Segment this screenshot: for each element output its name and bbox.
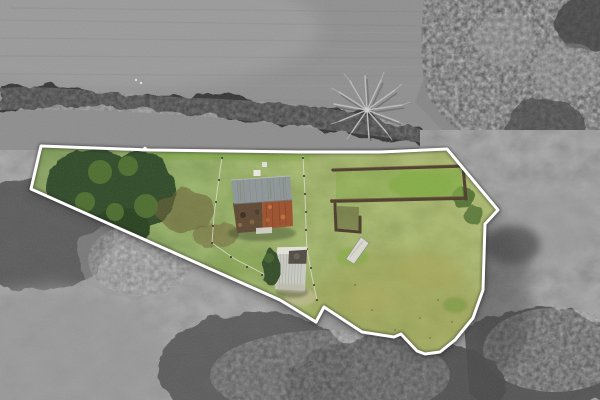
aerial-photo (0, 0, 600, 400)
film-grain (0, 0, 600, 400)
boundary-marker (143, 147, 147, 151)
screenshot-root (0, 0, 600, 400)
